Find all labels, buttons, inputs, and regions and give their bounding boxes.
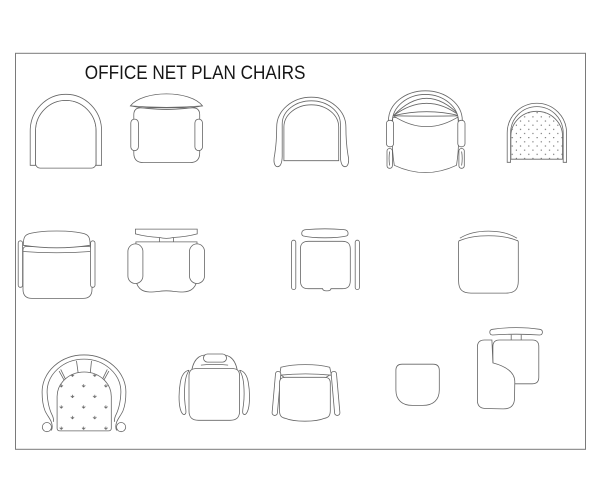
svg-text:OFFICE NET PLAN CHAIRS: OFFICE NET PLAN CHAIRS — [85, 61, 306, 83]
